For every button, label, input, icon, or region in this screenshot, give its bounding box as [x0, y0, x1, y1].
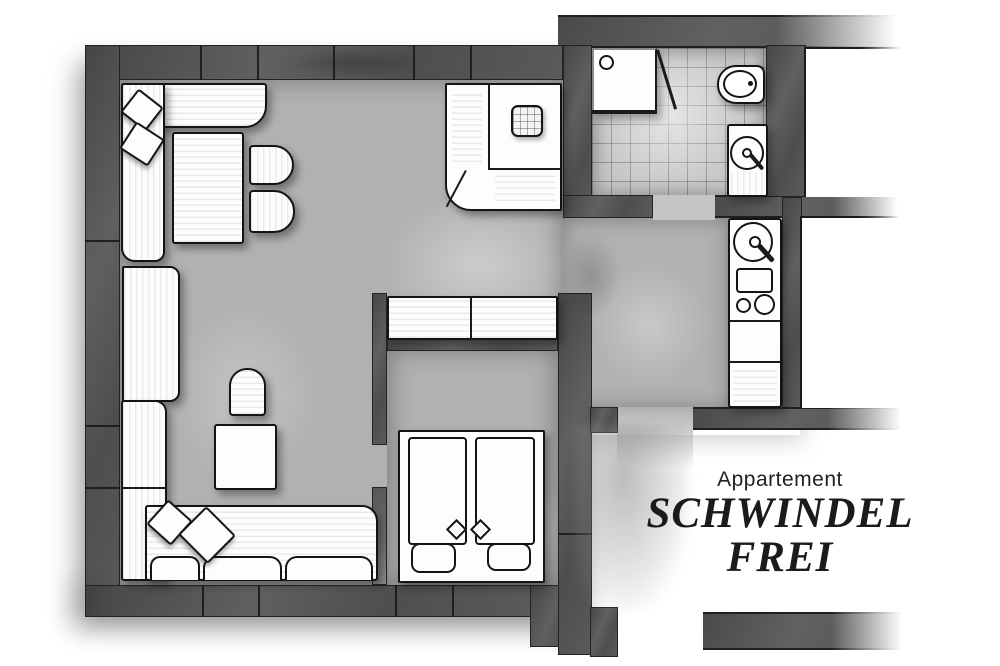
- burner-small: [736, 298, 751, 313]
- dining-chair-2: [249, 190, 295, 233]
- sofa-seat-cushion-2: [203, 556, 282, 580]
- wall-left: [85, 45, 120, 617]
- wall-stub-hallway: [590, 407, 618, 433]
- side-table: [214, 424, 277, 490]
- title-name-line1: SCHWINDEL: [600, 492, 960, 536]
- wall-top-right-wing: [558, 15, 910, 48]
- kitchen-sink-square: [511, 105, 543, 137]
- title-name-line2: FREI: [600, 536, 960, 580]
- wall-top-main: [85, 45, 563, 80]
- burner-large: [754, 294, 775, 315]
- armchair: [229, 368, 266, 416]
- wall-kitchen-right: [782, 197, 802, 410]
- wall-bottom-main: [85, 585, 533, 617]
- wall-stub-entry: [590, 607, 618, 657]
- wall-bathroom-bottom-right: [715, 195, 905, 218]
- wall-bedroom-right: [558, 293, 592, 655]
- shower-drain: [599, 55, 614, 70]
- pillow-left: [411, 543, 456, 573]
- side-room-middle: [802, 218, 905, 408]
- wall-bathroom-right: [766, 45, 806, 197]
- hallway-floor-runout: [617, 407, 693, 469]
- wall-entry-bottom-right: [703, 612, 910, 650]
- side-room-top: [806, 48, 906, 197]
- sofa-seat-cushion-3: [285, 556, 373, 580]
- wall-hallway-bottom: [693, 407, 910, 430]
- floor-plan-canvas: Appartement SCHWINDEL FREI: [0, 0, 1000, 666]
- toilet-button: [748, 81, 753, 86]
- wall-bathroom-left: [563, 45, 592, 218]
- title-brand: Appartement: [600, 468, 960, 492]
- apartment-title: Appartement SCHWINDEL FREI: [600, 468, 960, 580]
- wall-bathroom-bottom-left: [563, 195, 653, 218]
- dining-chair-1: [249, 145, 294, 185]
- wall-bedroom-left-upper: [372, 293, 387, 445]
- stove: [736, 268, 773, 293]
- dining-table: [172, 132, 244, 244]
- sideboard: [122, 266, 180, 402]
- wardrobe: [387, 296, 558, 340]
- sofa-seat-cushion-1: [150, 556, 200, 580]
- bathroom-door-gap: [653, 195, 715, 220]
- pillow-right: [487, 543, 531, 571]
